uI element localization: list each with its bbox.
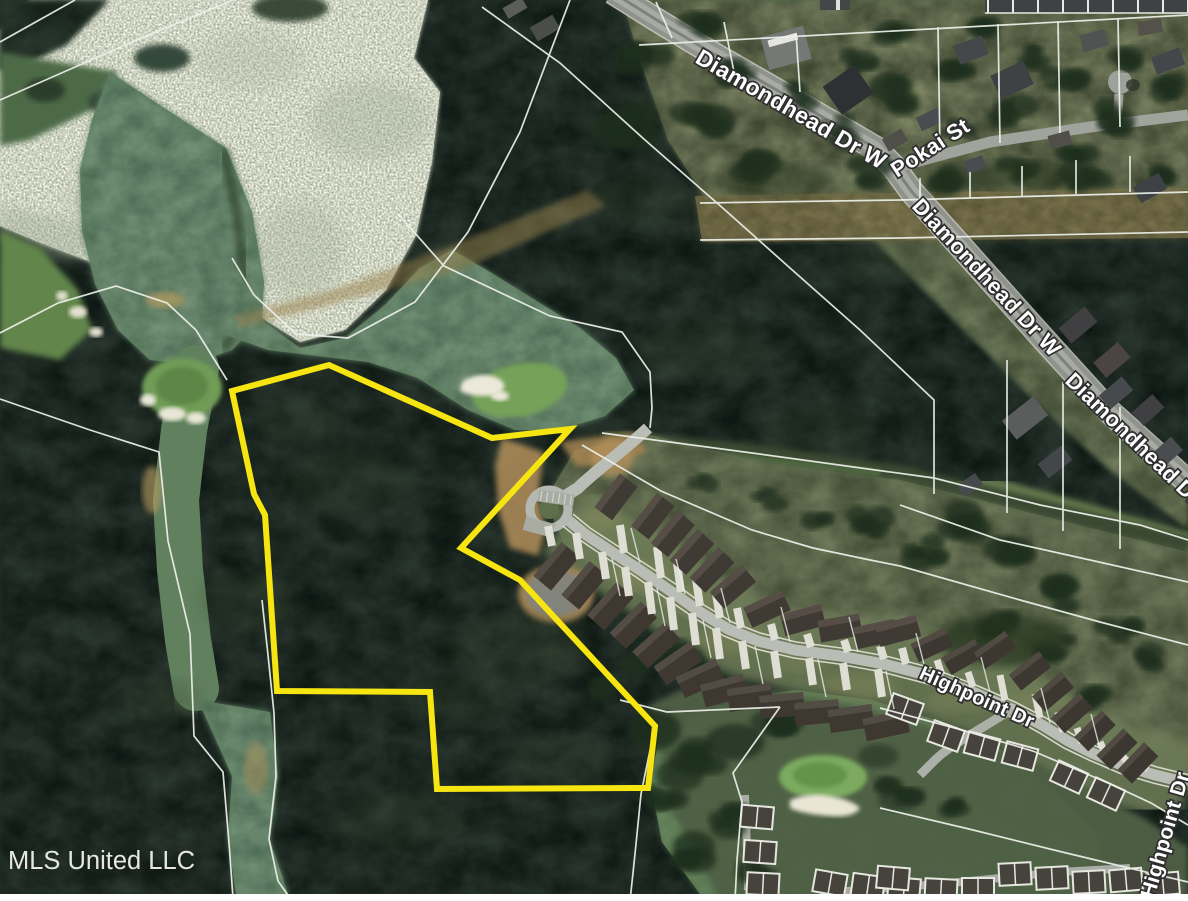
svg-text:MLS United LLC: MLS United LLC	[8, 847, 195, 875]
